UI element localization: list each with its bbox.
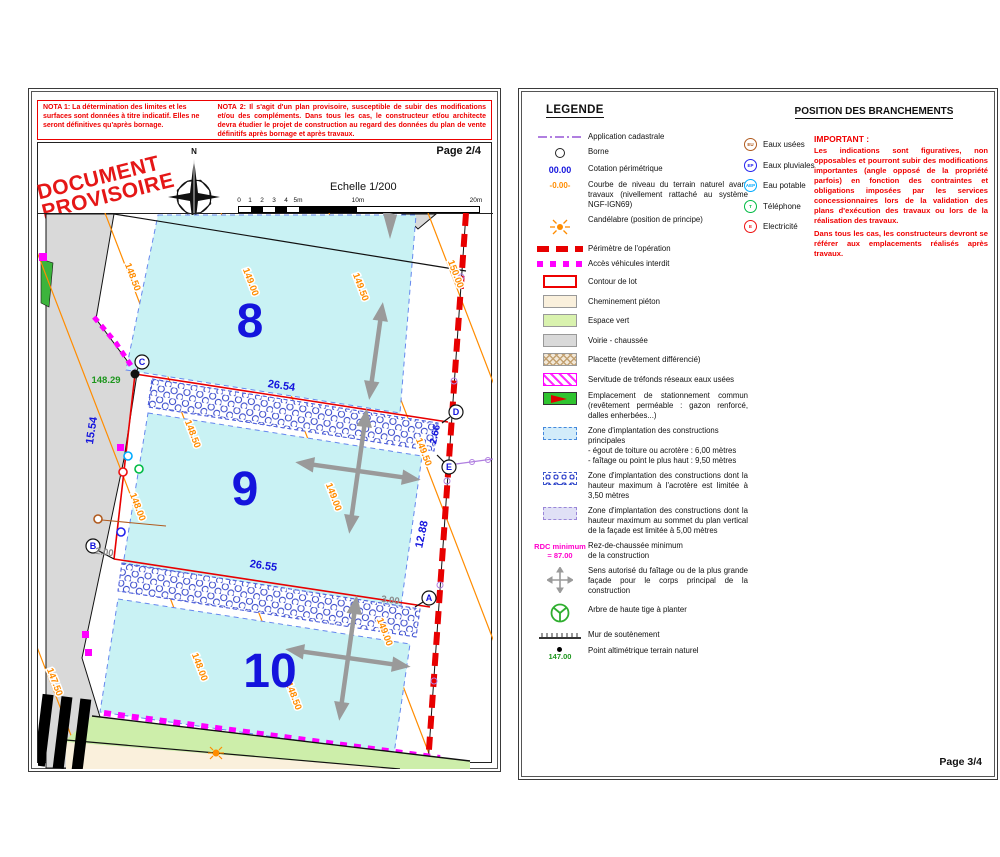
legend-item-borne: Borne [532,147,748,158]
eu-icon: EU [744,138,757,151]
scale-tick: 2 [260,197,264,204]
legend-item-zone-350: Zone d'implantation des constructions do… [532,471,748,500]
lot-number-10: 10 [243,645,296,698]
dim-12-88: 12.88 [413,520,430,549]
parking-swatch [543,392,577,405]
svg-text:148.50: 148.50 [122,262,143,293]
zone-350-swatch [543,472,577,485]
legend-item-cheminement: Cheminement piéton [532,294,748,308]
plan-page-inner-border: NOTA 1: La détermination des limites et … [31,91,498,769]
spot-height-148-29: 148.29 [91,375,120,386]
perimeter-dash-icon [532,244,588,253]
legend-item-servitude: Servitude de tréfonds réseaux eaux usées [532,372,748,386]
branchement-eau-potable: AEP Eau potable [744,179,815,192]
important-paragraph-2: Dans tous les cas, les constructeurs dev… [814,229,988,259]
retaining-wall-icon [532,630,588,641]
nota-1-text: NOTA 1: La détermination des limites et … [38,101,213,139]
branchements-list: EU Eaux usées EP Eaux pluviales AEP Eau … [744,138,815,241]
street-lamp-icon [532,215,588,238]
green-space-swatch [543,314,577,327]
important-paragraph-1: Les indications sont figuratives, non op… [814,146,988,226]
point-a-label: A [426,593,433,603]
legend-item-voirie: Voirie - chaussée [532,333,748,347]
point-d-label: D [453,407,460,417]
legend-item-courbe-niveau: -0.00- Courbe de niveau du terrain natur… [532,180,748,209]
legend-item-acces-interdit: Accès véhicules interdit [532,259,748,269]
contour-sample: -0.00- [550,181,571,190]
point-c-label: C [139,357,146,367]
lot-number-8: 8 [237,295,264,348]
scale-title: Echelle 1/200 [330,181,397,193]
nota-2-text: NOTA 2: Il s'agit d'un plan provisoire, … [213,101,491,139]
legend-item-placette: Placette (revêtement différencié) [532,352,748,366]
legend-item-mur: Mur de soutènement [532,630,748,641]
site-plan-drawing: A B C D E 147.50 148.00 148.00 148.50 [38,213,493,769]
walkway-swatch [543,295,577,308]
legend-item-perimetre: Périmètre de l'opération [532,244,748,254]
page-number: Page 3/4 [939,756,982,768]
scale-tick: 5m [293,197,302,204]
plan-page: NOTA 1: La détermination des limites et … [28,88,501,772]
compass-north-label: N [191,147,197,156]
provisional-stamp: DOCUMENT PROVISOIRE [35,151,176,223]
cotation-sample: 00.00 [549,165,572,175]
aep-icon: AEP [744,179,757,192]
legend-page: LEGENDE POSITION DES BRANCHEMENTS Applic… [518,88,998,780]
legend-item-application-cadastrale: Application cadastrale [532,132,748,142]
rdc-minimum-sample: RDC minimum= 87.00 [534,542,586,560]
scale-tick: 3 [272,197,276,204]
telephone-icon: T [744,200,757,213]
scale-tick: 20m [470,197,483,204]
nota-band: NOTA 1: La détermination des limites et … [37,100,492,140]
main-building-zone-swatch [543,427,577,440]
scale-tick: 1 [248,197,252,204]
legend-item-rdc-minimum: RDC minimum= 87.00 Rez-de-chaussée minim… [532,541,748,561]
branchement-electricite: E Electricité [744,220,815,233]
plan-frame: DOCUMENT PROVISOIRE Page 2/4 N Echelle 1… [37,142,492,763]
spot-height-sample: 147.00 [549,647,572,661]
legend-item-candelabre: Candélabre (position de principe) [532,215,748,238]
cadastral-line [456,458,493,465]
legend-item-contour-lot: Contour de lot [532,274,748,288]
plaza-swatch [543,353,577,366]
operation-perimeter [428,213,466,764]
legend-item-espace-vert: Espace vert [532,313,748,327]
page-number: Page 2/4 [436,145,481,157]
legend-item-sens-autorise: Sens autorisé du faîtage ou de la plus g… [532,566,748,595]
document-canvas: NOTA 1: La détermination des limites et … [0,0,1000,857]
branchement-eaux-usees: EU Eaux usées [744,138,815,151]
legend-title: LEGENDE [546,104,604,118]
easement-swatch [543,373,577,386]
cadastral-line-icon [532,132,588,141]
legend-item-zone-principale: Zone d'implantation des constructions pr… [532,426,748,465]
legend-item-point-altimetrique: 147.00 Point altimétrique terrain nature… [532,646,748,661]
branchement-telephone: T Téléphone [744,200,815,213]
legend-item-arbre: Arbre de haute tige à planter [532,601,748,624]
scale-tick: 0 [237,197,241,204]
direction-cross-icon [532,566,588,593]
electricity-icon: E [744,220,757,233]
legend-list: Application cadastrale Borne 00.00 Cotat… [532,132,748,667]
lot-number-9: 9 [232,463,259,516]
scale-tick: 4 [284,197,288,204]
important-title: IMPORTANT : [814,134,988,144]
important-notice: IMPORTANT : Les indications sont figurat… [814,134,988,262]
scale-tick: 10m [352,197,365,204]
point-e-label: E [446,462,452,472]
legend-page-inner-border: LEGENDE POSITION DES BRANCHEMENTS Applic… [521,91,995,777]
lot-contour-swatch [543,275,577,288]
road-swatch [543,334,577,347]
borne-icon [532,147,588,158]
legend-item-cotation: 00.00 Cotation périmétrique [532,164,748,175]
zone-500-swatch [543,507,577,520]
ep-icon: EP [744,159,757,172]
tree-icon [532,601,588,624]
legend-item-zone-500: Zone d'implantation des constructions do… [532,506,748,535]
no-access-dash-icon [532,259,588,268]
branchements-title: POSITION DES BRANCHEMENTS [760,106,988,117]
legend-item-stationnement: Emplacement de stationnement commun (rev… [532,391,748,420]
branchement-eaux-pluviales: EP Eaux pluviales [744,159,815,172]
scale-bar-segments [238,206,480,213]
